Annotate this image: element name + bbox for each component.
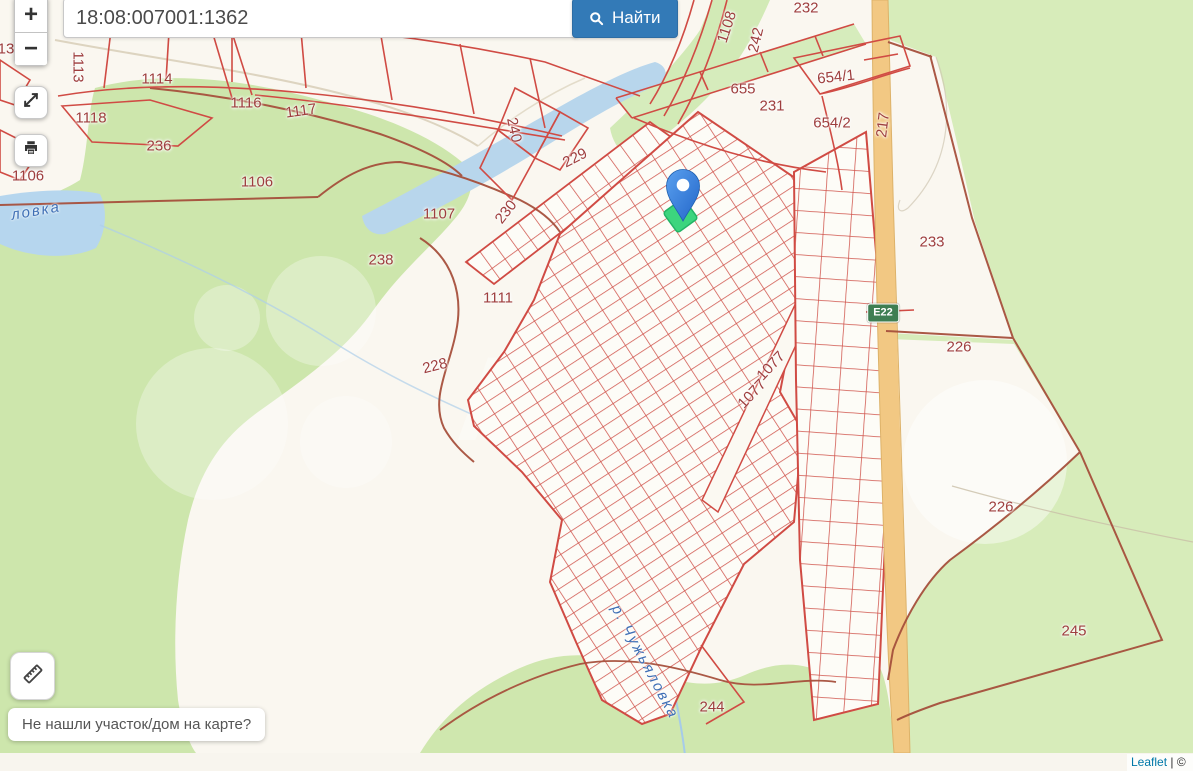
expand-arrows-icon xyxy=(21,90,41,115)
map-edge-strip xyxy=(0,753,1193,771)
map-attribution: Leaflet | © xyxy=(1127,754,1193,771)
zoom-in-button[interactable]: + xyxy=(14,0,48,32)
find-button[interactable]: Найти xyxy=(572,0,678,38)
leaflet-link[interactable]: Leaflet xyxy=(1131,755,1167,769)
map-canvas[interactable]: А xyxy=(0,0,1193,771)
map-viewport: А xyxy=(0,0,1193,771)
attribution-separator: | © xyxy=(1170,755,1185,769)
road-badge-e22: E22 xyxy=(867,304,899,323)
help-pill-label: Не нашли участок/дом на карте? xyxy=(22,716,251,733)
help-pill[interactable]: Не нашли участок/дом на карте? xyxy=(8,708,265,741)
measure-button[interactable] xyxy=(10,652,55,700)
print-button[interactable] xyxy=(14,134,48,167)
find-button-label: Найти xyxy=(612,8,661,28)
cadastral-search-input[interactable] xyxy=(63,0,579,38)
marker-pin-hole xyxy=(677,179,690,192)
zoom-out-button[interactable]: − xyxy=(14,32,48,66)
printer-icon xyxy=(22,139,40,162)
ruler-icon xyxy=(21,662,45,691)
search-icon xyxy=(589,11,604,26)
zoom-control: + − xyxy=(14,0,48,66)
fullscreen-button[interactable] xyxy=(14,86,48,119)
